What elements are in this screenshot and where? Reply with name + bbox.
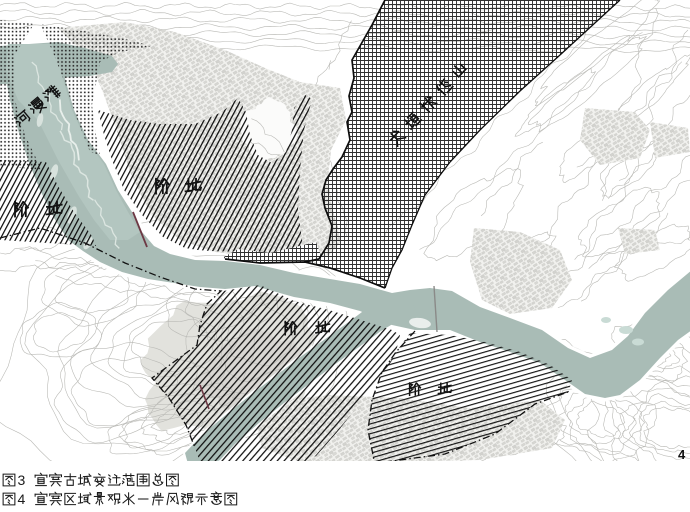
svg-text:4: 4 <box>678 447 686 462</box>
svg-text:3: 3 <box>18 472 26 488</box>
svg-text:4: 4 <box>18 491 26 507</box>
